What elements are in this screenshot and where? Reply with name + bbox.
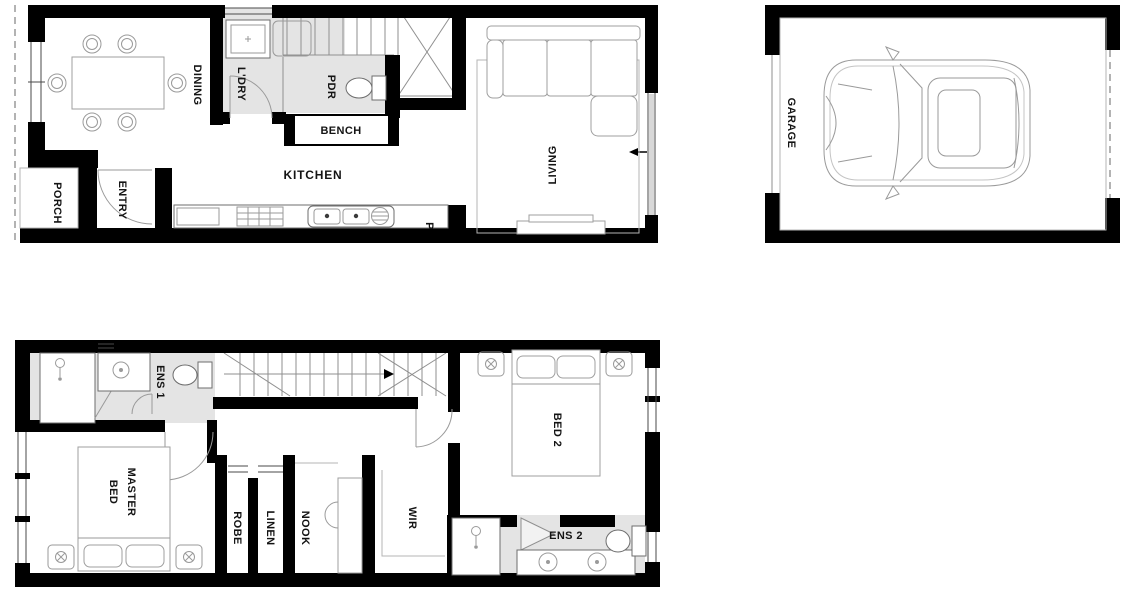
bench-label: BENCH: [320, 125, 361, 137]
car-symbol: [824, 47, 1030, 199]
pantry-label: P: [423, 222, 435, 230]
entry-label: ENTRY: [116, 181, 128, 220]
bed2-label: BED 2: [551, 413, 563, 447]
walk-in-robe: WIR: [382, 470, 445, 556]
bedroom-2: BED 2: [478, 350, 632, 476]
ens1-label: ENS 1: [154, 365, 166, 399]
vanity-symbol: [98, 353, 150, 391]
sink-symbol: [308, 206, 394, 227]
linen: LINEN: [258, 466, 283, 546]
upper-stairs: [224, 353, 446, 396]
living-label: LIVING: [547, 145, 559, 184]
dining-label: DINING: [191, 65, 203, 106]
nook: NOOK: [295, 463, 362, 573]
island-bench: BENCH: [285, 115, 398, 145]
nook-label: NOOK: [299, 511, 311, 546]
dining-room: DINING: [48, 35, 203, 131]
living-room: LIVING: [477, 26, 640, 234]
floorplan-drawing: PORCH ENTRY DINING: [0, 0, 1126, 589]
master-bed-label-line2: BED: [107, 480, 119, 504]
master-ens-door: [165, 432, 213, 480]
entry: ENTRY: [98, 170, 152, 224]
ground-floor-plan: PORCH ENTRY DINING: [15, 5, 658, 243]
kitchen-label: KITCHEN: [284, 168, 343, 182]
double-vanity-symbol: [517, 550, 635, 575]
laundry-label: L'DRY: [235, 67, 247, 101]
master-bedroom: MASTER BED: [48, 432, 213, 571]
garage-walls: [765, 5, 1120, 243]
garage-inner-line: [780, 18, 1106, 230]
upper-floor-plan: ENS 1 MASTER BED: [15, 340, 660, 587]
desk-symbol: [338, 478, 362, 573]
linen-label: LINEN: [264, 511, 276, 546]
tv-unit-symbol: [517, 215, 605, 234]
porch: PORCH: [20, 168, 78, 228]
dining-table-symbol: [48, 35, 186, 131]
porch-label: PORCH: [51, 182, 63, 224]
floorplan-canvas: PORCH ENTRY DINING: [0, 0, 1126, 589]
master-bed-label-line1: MASTER: [125, 468, 137, 517]
stair-direction-arrow: [384, 369, 394, 379]
powder-label: PDR: [325, 75, 337, 99]
wir-label: WIR: [406, 507, 418, 530]
toilet-symbol: [346, 76, 386, 100]
kitchen: P KITCHEN: [174, 168, 448, 230]
garage-plan: GARAGE: [765, 5, 1120, 243]
hall-door: [416, 409, 452, 447]
shower-symbol: [452, 518, 500, 575]
sofa-symbol: [487, 26, 640, 136]
garage-label: GARAGE: [785, 98, 797, 149]
door-direction-arrow: [629, 148, 638, 156]
robe-label: ROBE: [231, 511, 243, 544]
master-bed-symbol: [78, 447, 170, 571]
laundry-tub-symbol: [226, 20, 270, 58]
robe: ROBE: [228, 466, 248, 545]
ens2-label: ENS 2: [549, 530, 583, 542]
powder-room: PDR: [325, 75, 386, 100]
chair-symbol: [325, 502, 338, 528]
